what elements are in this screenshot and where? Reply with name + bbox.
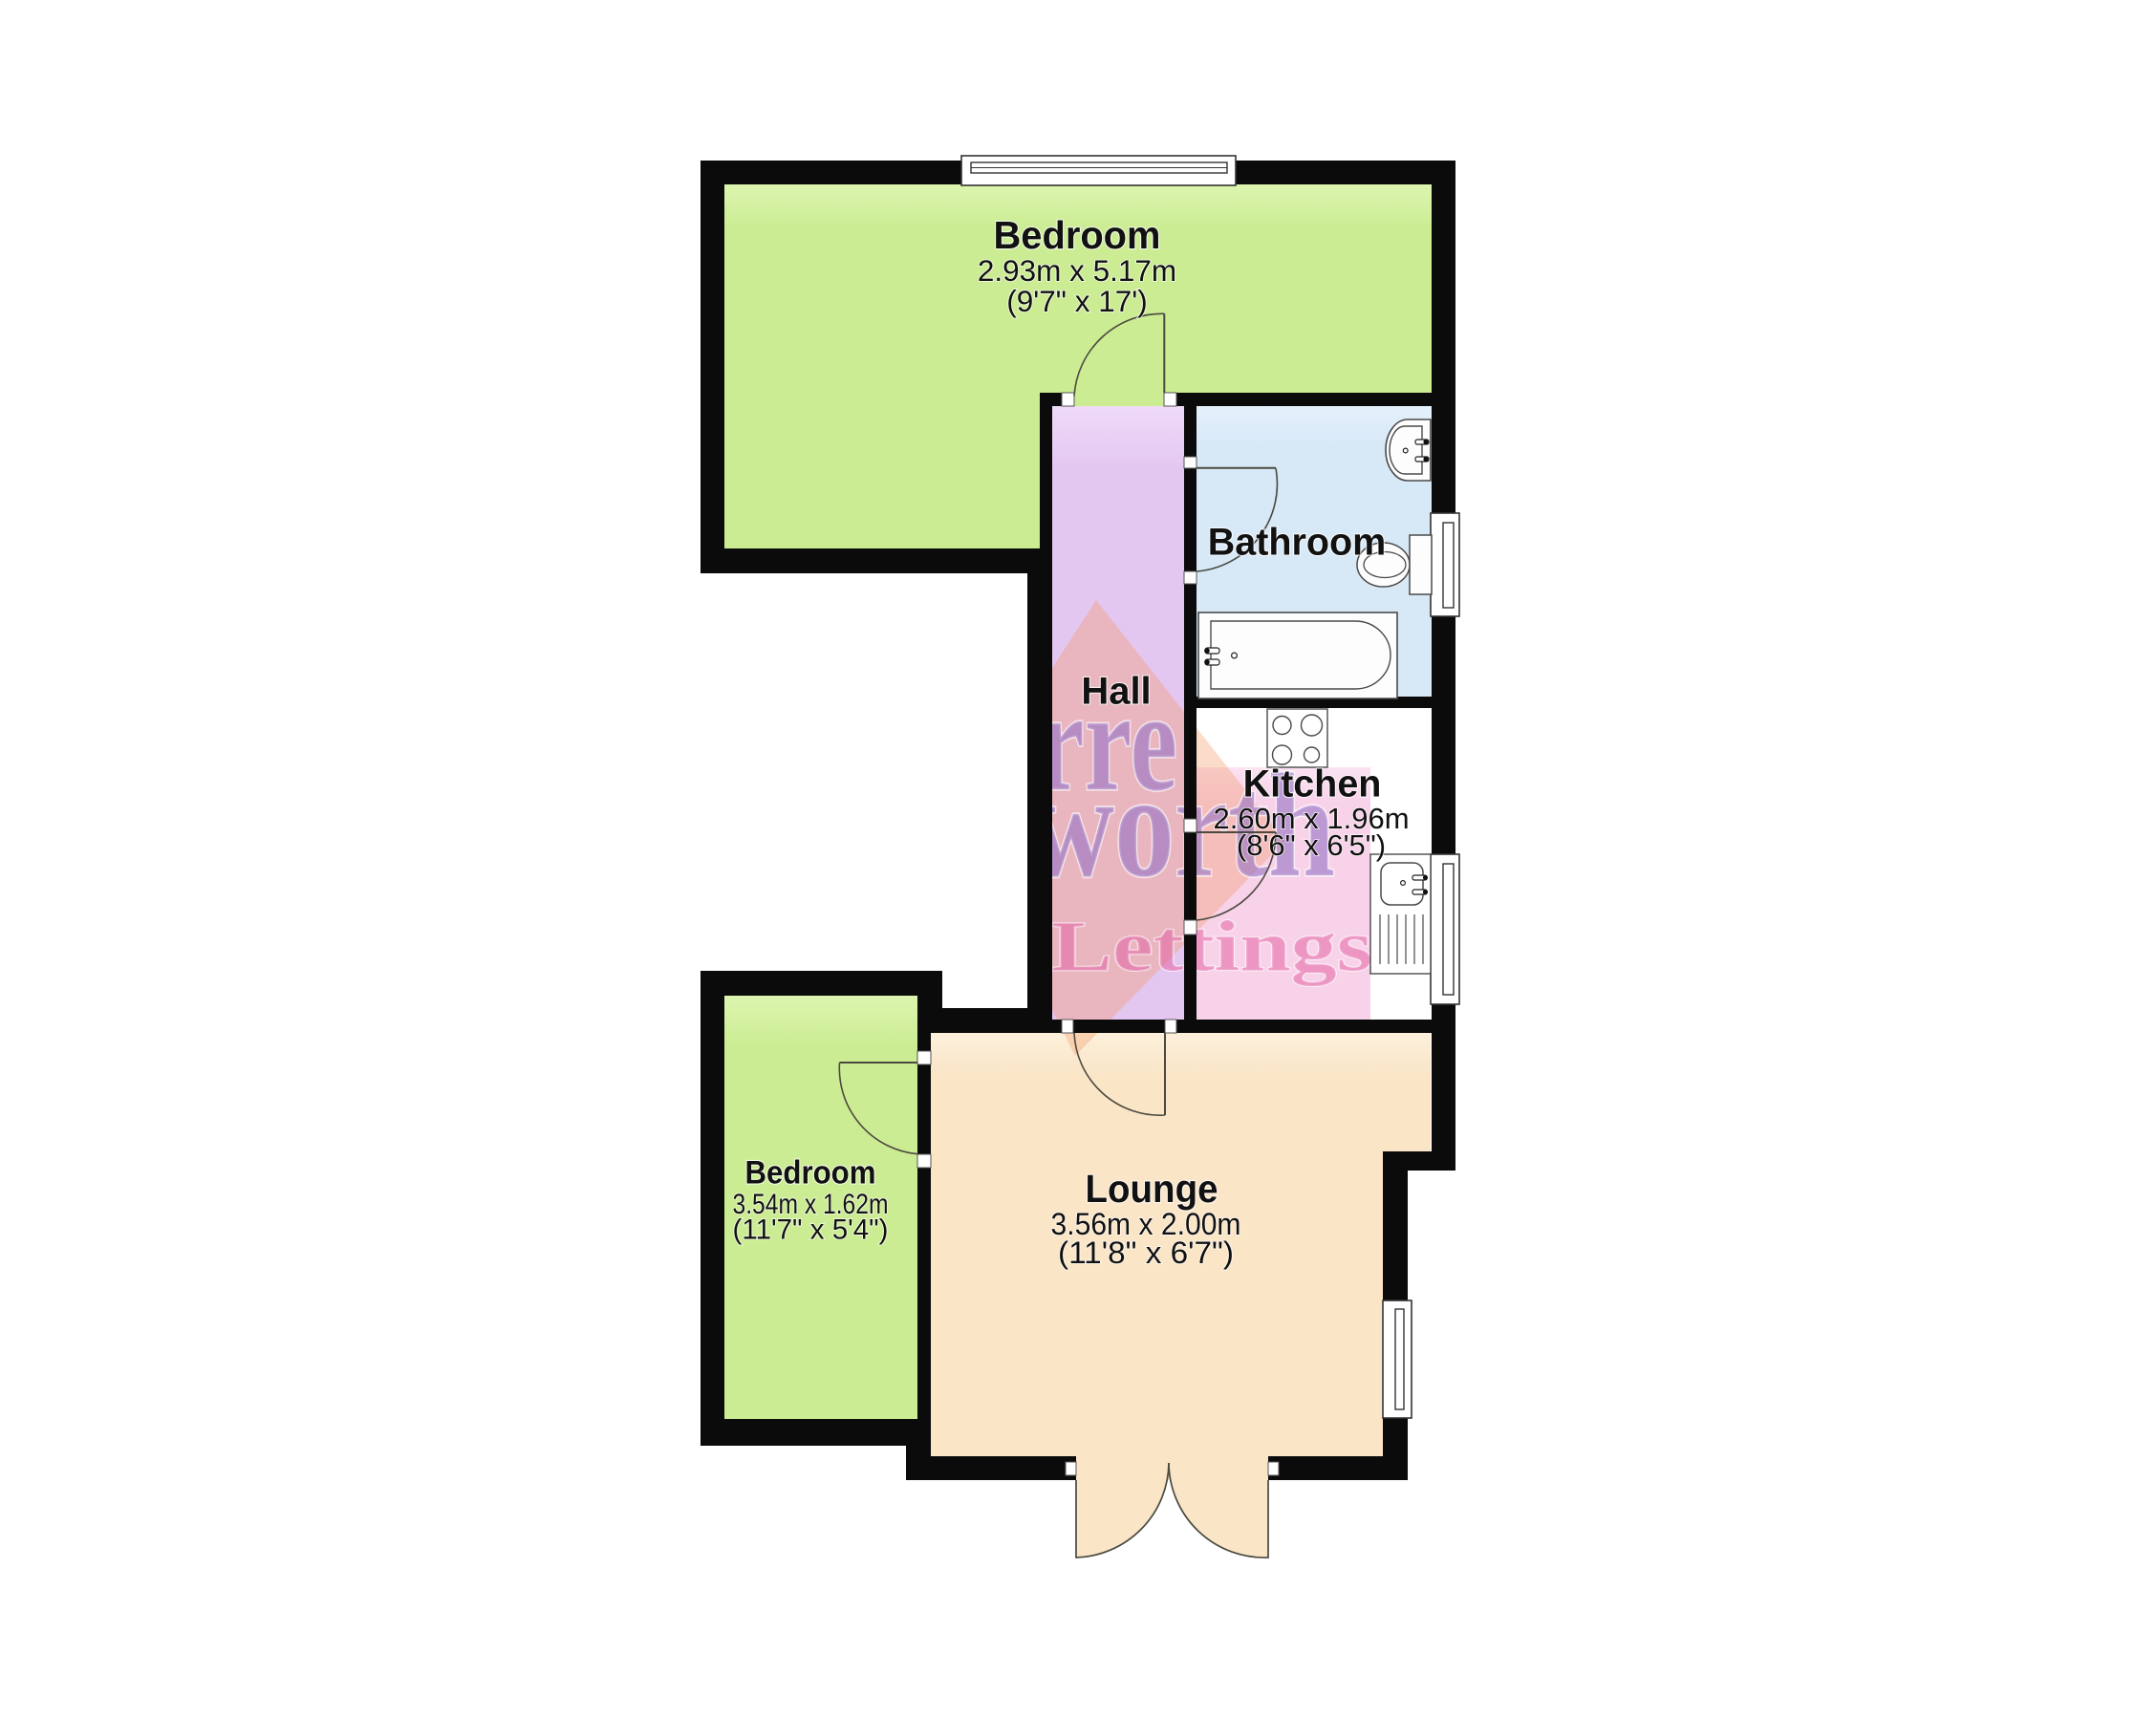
svg-text:Bedroom: Bedroom	[745, 1155, 876, 1192]
svg-text:Hall: Hall	[1081, 671, 1151, 713]
svg-text:Lettings: Lettings	[1051, 906, 1372, 986]
svg-text:(8'6" x 6'5"): (8'6" x 6'5")	[1237, 828, 1386, 862]
svg-text:(11'7" x 5'4"): (11'7" x 5'4")	[733, 1214, 889, 1246]
svg-text:(11'8" x 6'7"): (11'8" x 6'7")	[1058, 1236, 1234, 1270]
svg-text:Bedroom: Bedroom	[994, 213, 1161, 257]
svg-text:2.93m x 5.17m: 2.93m x 5.17m	[978, 253, 1176, 288]
svg-text:Bathroom: Bathroom	[1208, 522, 1387, 564]
svg-text:(9'7" x 17'): (9'7" x 17')	[1006, 284, 1148, 318]
svg-text:Kitchen: Kitchen	[1243, 763, 1382, 806]
svg-text:Lounge: Lounge	[1086, 1167, 1218, 1211]
